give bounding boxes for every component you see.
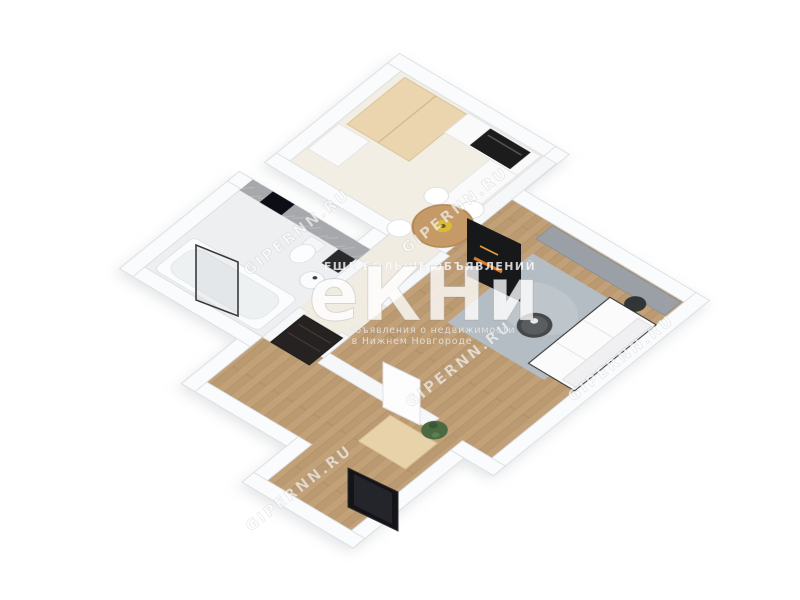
watermark-logo-subline1: объявления о недвижимости — [349, 325, 516, 336]
floor-plan-canvas: GIPERNN.RU GIPERNN.RU GIPERNN.RU GIPERNN… — [0, 0, 800, 600]
watermark-logo-subline2: в Нижнем Новгороде — [352, 336, 473, 347]
floor-plan-image: GIPERNN.RU GIPERNN.RU GIPERNN.RU GIPERNN… — [0, 0, 800, 600]
watermark-logo: ЕЩЕ БОЛЬШЕ ОБЪЯВЛЕНИЙ еКНи объявления о … — [309, 252, 541, 347]
